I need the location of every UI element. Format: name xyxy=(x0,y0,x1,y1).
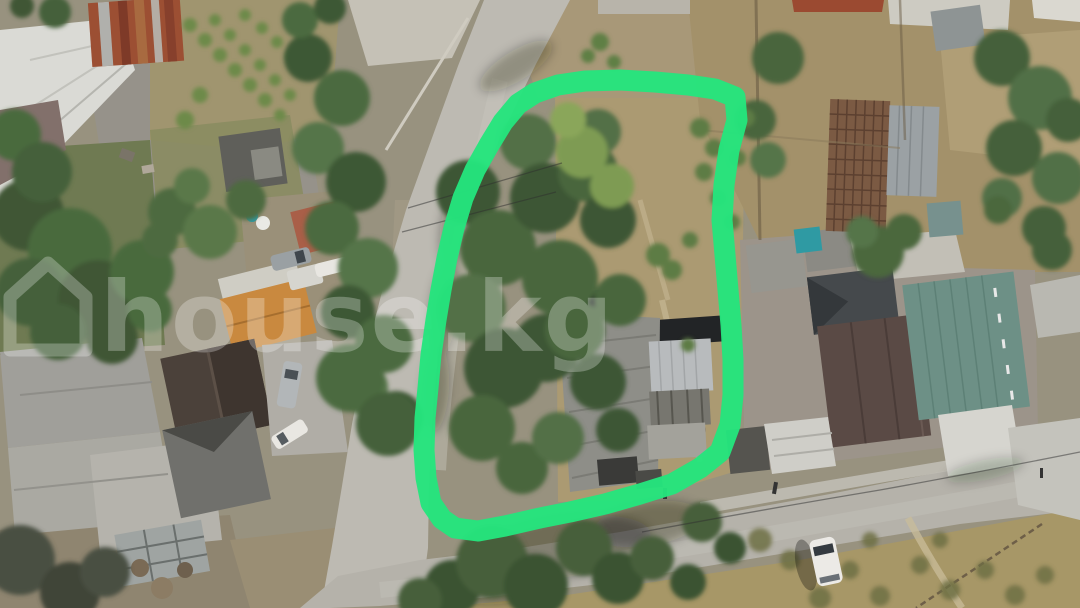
roof-dark-gray xyxy=(162,411,271,518)
roof-silver-section xyxy=(649,338,714,393)
roof-red-top-edge xyxy=(792,0,884,12)
watermark: house.kg xyxy=(10,261,615,374)
aerial-photo-canvas: house.kg xyxy=(0,0,1080,608)
roof-green-metal xyxy=(902,272,1030,421)
watermark-text: house.kg xyxy=(100,261,615,374)
shed-top-right xyxy=(930,5,985,52)
pool-teal xyxy=(794,227,823,254)
roof-gray-metal-tr xyxy=(886,105,939,197)
umbrella-white xyxy=(256,216,270,230)
roof-tile-grid xyxy=(826,99,891,233)
aerial-photo: house.kg xyxy=(0,0,1080,608)
roof-rust-corrugated xyxy=(88,0,184,67)
